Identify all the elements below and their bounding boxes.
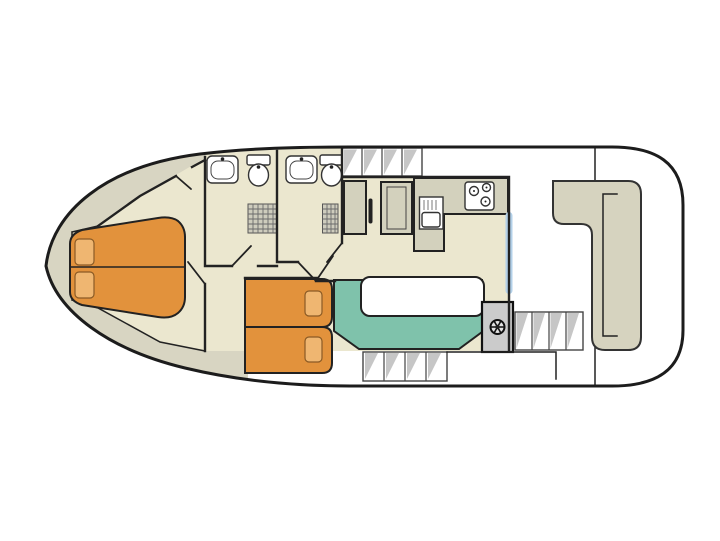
oven-cabinet: [381, 182, 412, 234]
aft-deck-steps: [515, 312, 583, 350]
boat-deck-plan: [0, 0, 720, 541]
burner-dot: [486, 187, 488, 189]
dinette-table: [361, 277, 484, 316]
fridge-handle: [369, 199, 373, 224]
faucet-icon: [221, 157, 225, 161]
pillow: [75, 272, 94, 298]
sink-bowl: [422, 213, 440, 228]
deck-plan-canvas: [0, 0, 720, 541]
toilet-flush-icon: [257, 165, 261, 169]
side-deck-strip: [205, 346, 248, 390]
burner-dot: [473, 190, 475, 192]
pillow: [305, 337, 322, 362]
pillow: [75, 239, 94, 265]
burner-dot: [485, 201, 487, 203]
steering-wheel-hub: [495, 325, 499, 329]
pillow: [305, 291, 322, 316]
faucet-icon: [300, 157, 304, 161]
side-deck-steps-top: [342, 148, 422, 176]
fridge: [344, 181, 366, 234]
toilet-flush-icon: [330, 165, 334, 169]
